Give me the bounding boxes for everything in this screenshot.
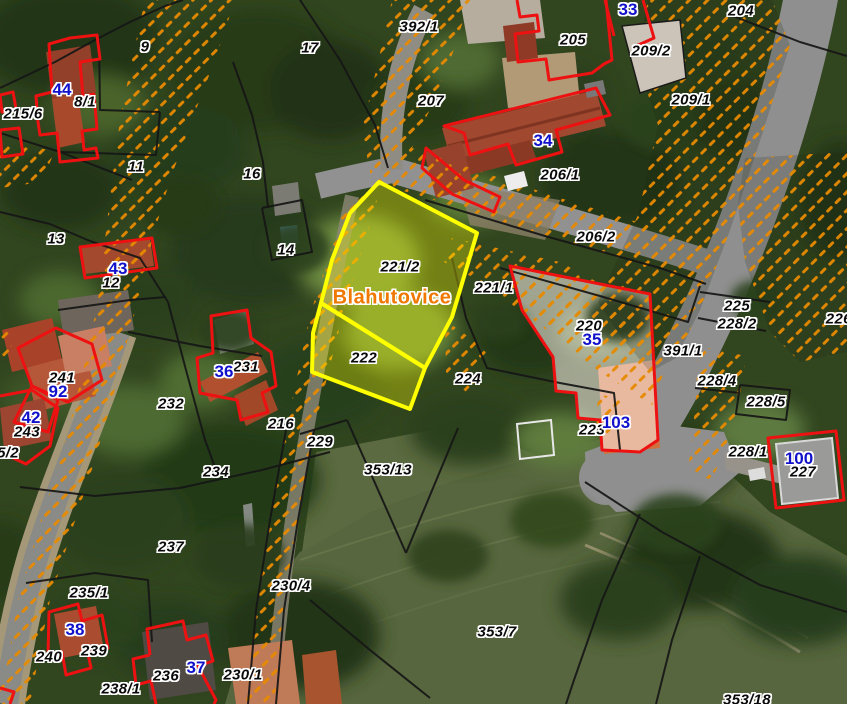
orthophoto-cadastre-layers (0, 0, 847, 704)
map-canvas[interactable]: 917392/1205209/2204207209/18/1215/611162… (0, 0, 847, 704)
